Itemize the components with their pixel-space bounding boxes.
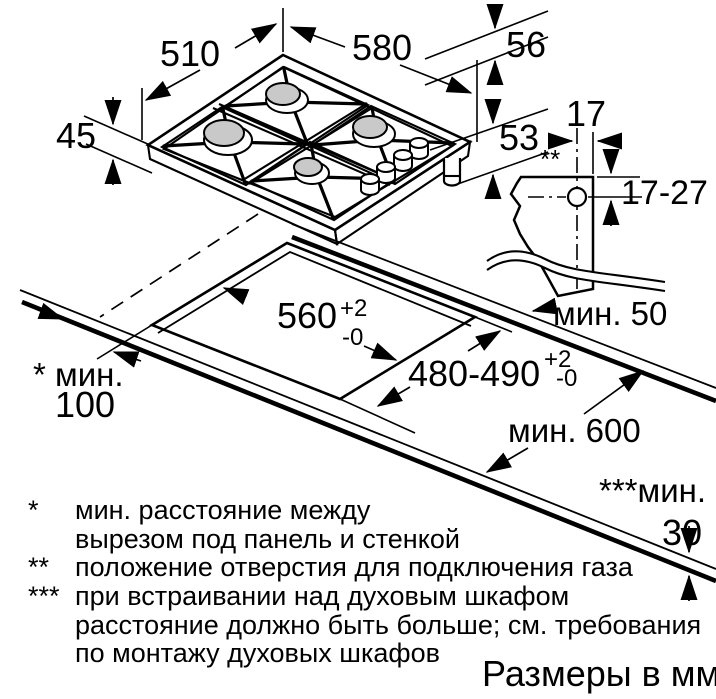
footnote-1-line-1: мин. расстояние между xyxy=(75,495,371,525)
footnote-3-line-1: при встраивании над духовым шкафом xyxy=(75,581,569,611)
hob-isometric-view xyxy=(148,55,470,244)
units-caption: Размеры в мм xyxy=(482,653,716,694)
hob-height-below-label: 53 xyxy=(499,117,539,158)
hole-offset-label: 17 xyxy=(566,93,606,134)
footnote-3-line-3: по монтажу духовых шкафов xyxy=(75,638,440,668)
installation-diagram-page: 560 +2 -0 480-490 +2 -0 * мин. 100 мин. … xyxy=(0,0,716,699)
footnote-1-line-2: вырезом под панель и стенкой xyxy=(75,524,460,554)
hole-marker-label: ** xyxy=(540,144,560,174)
footnote-2-line-1: положение отверстия для подключения газа xyxy=(75,552,634,582)
cutout-depth-tol-minus: -0 xyxy=(556,365,577,392)
control-knob xyxy=(394,150,412,171)
dimension-cutout-depth: 480-490 +2 -0 xyxy=(378,331,577,406)
burner-rear-center xyxy=(266,83,308,113)
footnote-3-symbol: *** xyxy=(28,581,60,611)
footnote-1-symbol: * xyxy=(28,495,39,525)
hob-width-label: 580 xyxy=(352,27,412,68)
min-left-value: 100 xyxy=(55,384,115,425)
control-knob xyxy=(361,174,379,195)
hob-leg xyxy=(444,158,460,186)
footnote-2-symbol: ** xyxy=(28,552,50,582)
hob-depth-label: 510 xyxy=(160,33,220,74)
cutout-width-label: 560 xyxy=(277,295,337,336)
min-back-label: мин. 50 xyxy=(553,295,667,332)
dimension-hob-depth: 510 xyxy=(142,8,283,140)
gas-connection-hole xyxy=(568,188,586,206)
dimension-hob-rim-height: 45 xyxy=(56,97,152,185)
burner-front-center xyxy=(294,158,329,184)
burner-right xyxy=(353,116,395,147)
dimension-hole-range: 17-27 xyxy=(588,149,708,226)
dimension-hob-height-above: 56 xyxy=(425,7,548,85)
installation-diagram: 560 +2 -0 480-490 +2 -0 * мин. 100 мин. … xyxy=(0,0,716,699)
footnote-3-line-2: расстояние должно быть больше; см. требо… xyxy=(75,610,701,640)
cutout-width-tol-minus: -0 xyxy=(342,324,363,351)
min-front-value: 30 xyxy=(662,512,702,553)
dimension-cutout-width: 560 +2 -0 xyxy=(224,288,396,360)
dimension-min-back: мин. 50 xyxy=(533,295,667,332)
min-counter-depth-label: мин. 600 xyxy=(508,412,641,449)
hole-range-label: 17-27 xyxy=(621,174,708,212)
dimension-hole-offset: 17 xyxy=(550,93,620,174)
footnotes: * мин. расстояние между вырезом под пане… xyxy=(28,495,701,668)
burner-left xyxy=(204,120,252,155)
hob-rim-height-label: 45 xyxy=(56,115,96,156)
cutout-depth-label: 480-490 xyxy=(408,353,540,394)
hob-height-above-label: 56 xyxy=(506,24,546,65)
projection-dashed-line xyxy=(100,214,258,317)
min-front-label: ***мин. xyxy=(599,472,706,509)
cutout-width-tol-plus: +2 xyxy=(340,295,367,322)
